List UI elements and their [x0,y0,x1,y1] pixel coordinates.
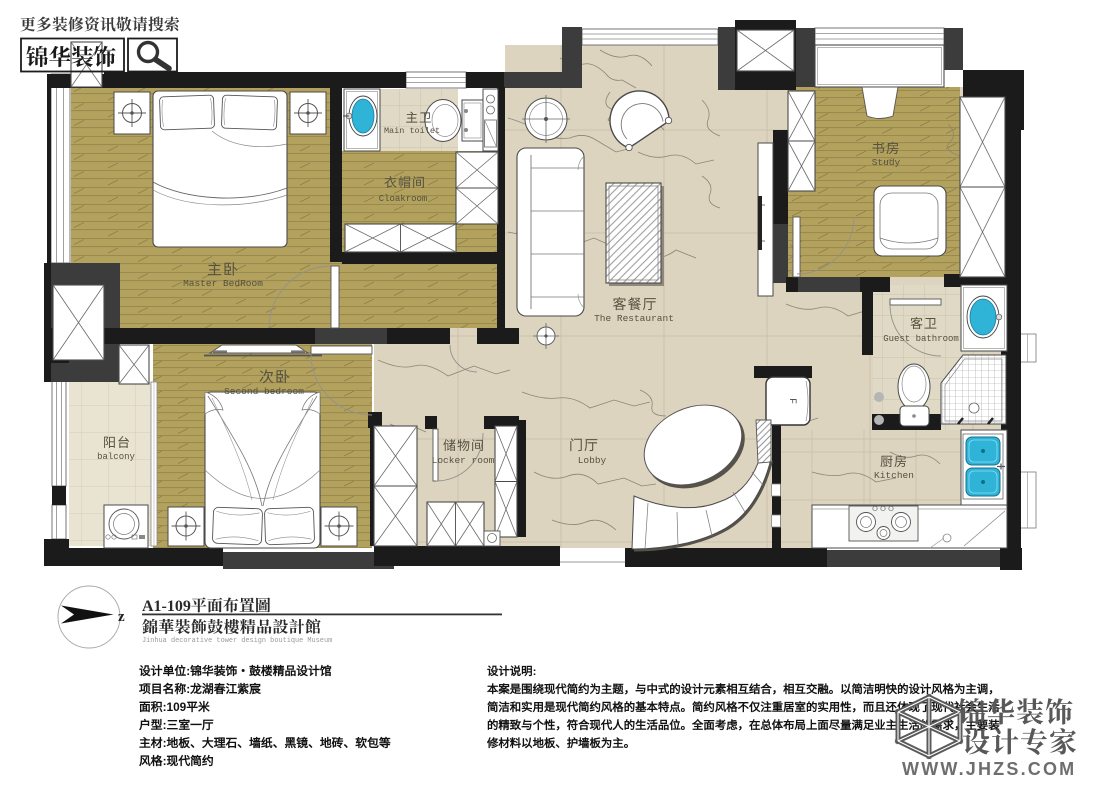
svg-text:Locker room: Locker room [432,455,495,466]
svg-text:z: z [118,609,125,625]
svg-text:Master BedRoom: Master BedRoom [183,278,263,289]
svg-text:Lobby: Lobby [578,455,607,466]
svg-text:主卫: 主卫 [405,107,432,126]
svg-text:WWW.JHZS.COM: WWW.JHZS.COM [902,759,1076,779]
svg-text:Main toilet: Main toilet [384,126,440,136]
svg-text:balcony: balcony [97,452,135,462]
svg-text:项目名称:龙湖春江紫宸: 项目名称:龙湖春江紫宸 [139,680,261,697]
svg-text:设计专家: 设计专家 [962,721,1078,761]
svg-text:面积:109平米: 面积:109平米 [139,698,210,715]
svg-text:储物间: 储物间 [443,435,485,454]
svg-text:客卫: 客卫 [910,313,938,332]
svg-text:Jinhua decorative tower design: Jinhua decorative tower design boutique … [142,637,332,645]
svg-text:设计说明:: 设计说明: [487,663,536,679]
svg-text:Guest bathroom: Guest bathroom [883,334,959,344]
svg-text:修材料以地板、护墙板为主。: 修材料以地板、护墙板为主。 [486,735,635,751]
svg-text:锦华装饰: 锦华装饰 [26,40,117,72]
svg-text:次卧: 次卧 [259,366,291,387]
svg-text:厨房: 厨房 [880,451,908,470]
svg-text:客餐厅: 客餐厅 [613,294,658,314]
svg-text:主材:地板、大理石、墙纸、黑镜、地砖、软包等: 主材:地板、大理石、墙纸、黑镜、地砖、软包等 [139,734,391,751]
svg-text:风格:现代简约: 风格:现代简约 [139,752,214,769]
svg-text:Cloakroom: Cloakroom [379,194,428,204]
svg-text:主卧: 主卧 [207,259,239,280]
svg-text:The Restaurant: The Restaurant [594,313,674,324]
svg-text:设计单位:锦华装饰·鼓楼精品设计馆: 设计单位:锦华装饰·鼓楼精品设计馆 [139,662,332,679]
svg-text:Study: Study [872,157,901,168]
svg-text:书房: 书房 [872,137,901,157]
svg-text:衣帽间: 衣帽间 [384,172,426,191]
svg-text:门厅: 门厅 [569,435,599,455]
svg-text:阳台: 阳台 [103,432,131,451]
svg-text:Second bedroom: Second bedroom [224,386,304,397]
svg-text:户型:三室一厅: 户型:三室一厅 [139,716,214,733]
svg-text:F: F [788,398,798,404]
svg-text:更多装修资讯敬请搜索: 更多装修资讯敬请搜索 [20,12,180,35]
svg-text:Kitchen: Kitchen [874,470,914,481]
svg-text:本案是围绕现代简约为主题，与中式的设计元素相互结合，相互交融: 本案是围绕现代简约为主题，与中式的设计元素相互结合，相互交融。以简洁明快的设计风… [486,681,1000,697]
svg-text:錦華裝飾鼓樓精品設計館: 錦華裝飾鼓樓精品設計館 [142,615,321,638]
svg-text:A1-109平面布置圖: A1-109平面布置圖 [142,593,271,616]
